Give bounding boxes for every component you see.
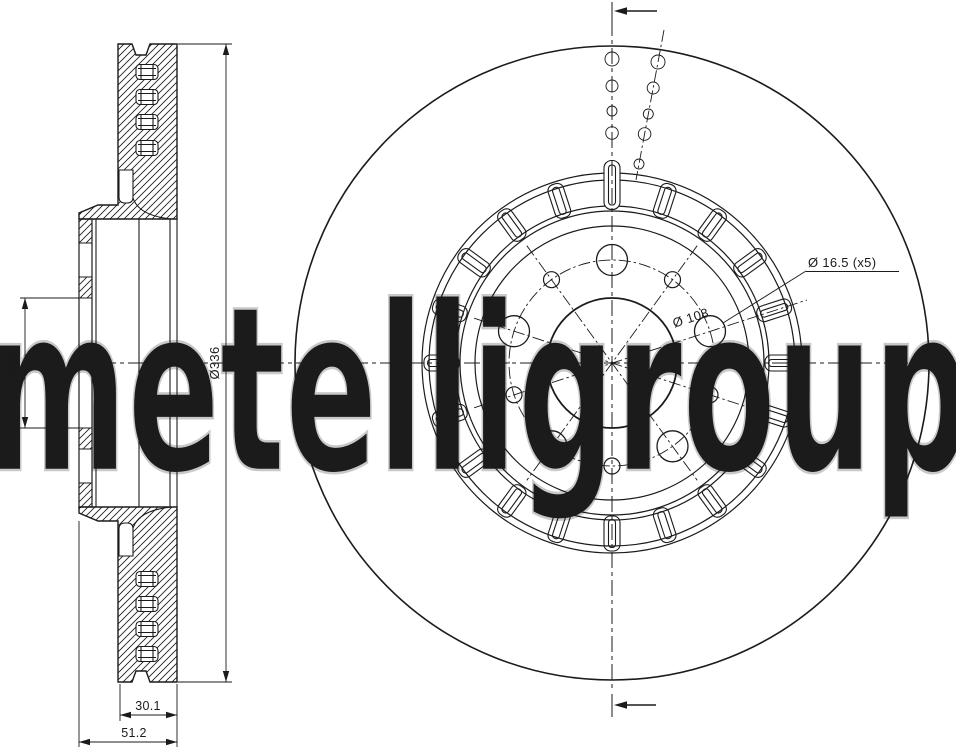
vent-hole-leaders — [605, 30, 665, 180]
dim-bore-diameter: Ø68 — [5, 350, 20, 375]
technical-drawing-page: metelligroup — [0, 0, 956, 747]
section-arrow-top-icon — [614, 7, 657, 14]
undercut-groove-top — [119, 170, 133, 203]
section-arrow-bottom-icon — [614, 701, 656, 708]
dim-overall-height: 51.2 — [121, 726, 147, 740]
undercut-groove-bottom — [119, 523, 133, 556]
dim-outer-diameter: Ø336 — [207, 346, 222, 379]
dim-bolt-holes: Ø 16.5 (x5) — [808, 255, 876, 270]
brake-disc-drawing: metelligroup — [0, 0, 956, 747]
dim-thickness: 30.1 — [135, 699, 161, 713]
